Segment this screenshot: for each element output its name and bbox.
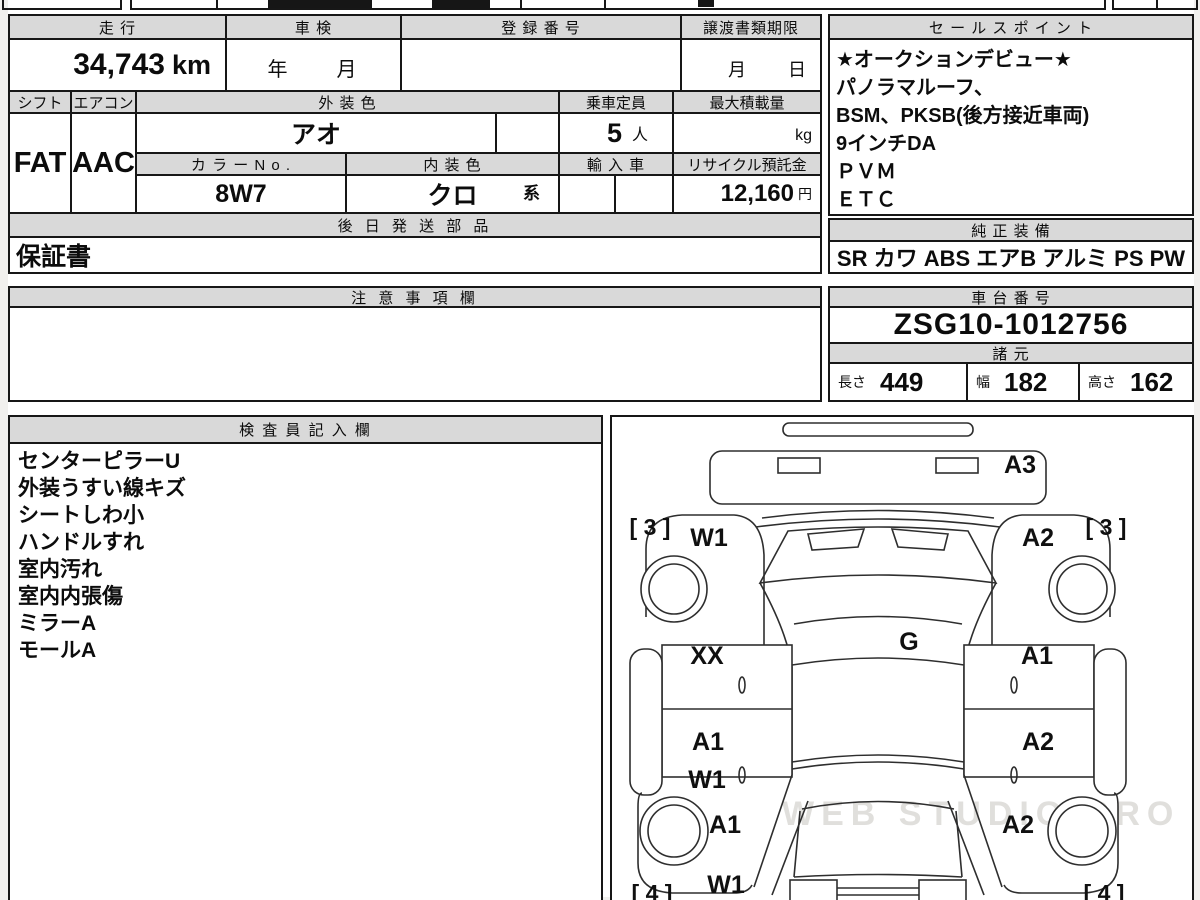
label-front-left-grade: [ 3 ]: [630, 514, 671, 541]
genuine-equipment-header: 純 正 装 備: [828, 218, 1194, 242]
left-side-molding: [630, 649, 662, 795]
sales-points-body: ★オークションデビュー★ パノラマルーフ、 BSM、PKSB(後方接近車両) 9…: [828, 38, 1194, 216]
mileage-header: 走 行: [8, 14, 227, 40]
label-front-left-fender: W1: [690, 524, 728, 553]
rear-window-curve: [802, 802, 954, 810]
capacity-header: 乗車定員: [558, 90, 674, 114]
cropped-cell: [1156, 0, 1198, 10]
label-rear-left-quarter-w: W1: [707, 871, 745, 900]
inspector-note: センターピラーU: [10, 448, 601, 475]
right-side-molding: [1094, 649, 1126, 795]
dash-curve: [794, 617, 962, 625]
recycle-number: 12,160: [721, 180, 794, 208]
inspection-header: 車 検: [225, 14, 402, 40]
sales-points-header: セ ー ル ス ポ イ ン ト: [828, 14, 1194, 40]
later-parts-header: 後 日 発 送 部 品: [8, 212, 822, 238]
interior-color-suffix: 系: [523, 179, 540, 204]
spec-length-label: 長さ: [838, 372, 866, 392]
cropped-text-fragment: [432, 0, 490, 9]
windshield: [760, 527, 996, 583]
notes-header: 注 意 事 項 欄: [8, 286, 822, 308]
rear-bumper-right: [919, 880, 966, 900]
trunk-right-edge: [956, 811, 962, 877]
cowl-line: [756, 519, 1000, 527]
bumper-vent-right: [936, 458, 978, 473]
chassis-number-value: ZSG10-1012756: [828, 306, 1194, 344]
capacity-value: 5 人: [558, 112, 674, 154]
genuine-equipment-value: SR カワ ABS エアB アルミ PS PW: [828, 240, 1194, 274]
inspector-notes-header: 検 査 員 記 入 欄: [10, 417, 601, 444]
sales-point-line: ＰＶＭ: [836, 158, 896, 186]
left-c-pillar: [754, 775, 792, 887]
cropped-text-fragment: [698, 0, 714, 7]
label-rear-right-quarter: A2: [1002, 811, 1034, 840]
recycle-unit: 円: [798, 184, 812, 212]
left-door-panel: [662, 645, 792, 777]
registration-value: [400, 38, 682, 92]
label-front-right-door: A1: [1021, 642, 1053, 671]
inspector-note: 室内内張傷: [10, 583, 601, 610]
label-front-panel: A3: [1004, 451, 1036, 480]
spec-height-cell: 高さ 162: [1078, 362, 1194, 402]
front-bumper: [710, 451, 1046, 504]
transfer-deadline-value: 月 日: [680, 38, 822, 92]
inspector-note: ミラーA: [10, 610, 601, 637]
trunk-left-edge: [794, 811, 800, 877]
chassis-number-header: 車 台 番 号: [828, 286, 1194, 308]
inspector-notes-list: センターピラーU 外装うすい線キズ シートしわ小 ハンドルすれ 室内汚れ 室内内…: [10, 444, 601, 664]
right-c-pillar: [964, 775, 1002, 887]
sales-point-line: ＥＴＣ: [836, 186, 896, 214]
spec-height-value: 162: [1130, 367, 1173, 398]
wiper-right: [892, 529, 948, 550]
label-front-right-fender: A2: [1022, 524, 1054, 553]
recycle-deposit-value: 12,160 円: [672, 174, 822, 214]
exterior-color-value: アオ: [135, 112, 497, 154]
cropped-cell: [604, 0, 1106, 10]
later-parts-value: 保証書: [8, 236, 822, 274]
rear-seat-curve: [792, 762, 964, 769]
spec-width-label: 幅: [976, 372, 990, 392]
spec-width-value: 182: [1004, 367, 1047, 398]
capacity-unit: 人: [632, 121, 648, 152]
inspector-notes-box: 検 査 員 記 入 欄 センターピラーU 外装うすい線キズ シートしわ小 ハンド…: [8, 415, 603, 900]
interior-color-name: クロ: [427, 176, 477, 212]
rear-bumper-left: [790, 880, 837, 900]
max-load-value: kg: [672, 112, 822, 154]
inspection-value: 年 月: [225, 38, 402, 92]
bumper-vent-left: [778, 458, 820, 473]
front-top-bar: [783, 423, 973, 436]
cropped-cell: [1112, 0, 1158, 10]
spec-height-label: 高さ: [1088, 372, 1116, 392]
sales-point-line: 9インチDA: [836, 130, 936, 158]
cropped-cell: [2, 0, 122, 10]
registration-header: 登 録 番 号: [400, 14, 682, 40]
inspector-note: シートしわ小: [10, 502, 601, 529]
inspector-note: ハンドルすれ: [10, 529, 601, 556]
inspector-note: 外装うすい線キズ: [10, 475, 601, 502]
inspector-note: 室内汚れ: [10, 556, 601, 583]
label-rear-right-door: A2: [1022, 728, 1054, 757]
front-seat-curve: [792, 658, 964, 665]
capacity-number: 5: [607, 118, 622, 149]
label-front-left-door: XX: [690, 642, 723, 671]
label-rear-right-grade: [ 4 ]: [1084, 880, 1125, 900]
front-left-wheel: [641, 556, 707, 622]
car-diagram-box: WEB STUDIO PRO: [610, 415, 1194, 900]
recycle-deposit-header: リサイクル預託金: [672, 152, 822, 176]
label-rear-left-quarter: A1: [709, 811, 741, 840]
trunk-bottom: [794, 875, 962, 878]
color-no-header: カ ラ ー N o .: [135, 152, 347, 176]
label-rear-left-door: A1: [692, 728, 724, 757]
label-rear-left-grade: [ 4 ]: [632, 880, 673, 900]
cropped-text-fragment: [268, 0, 372, 8]
cropped-cell: [130, 0, 218, 10]
label-roof: G: [899, 628, 918, 657]
label-front-right-grade: [ 3 ]: [1086, 514, 1127, 541]
max-load-header: 最大積載量: [672, 90, 822, 114]
aircon-header: エアコン: [70, 90, 137, 114]
spec-length-value: 449: [880, 367, 923, 398]
cropped-cell: [520, 0, 606, 10]
rear-seat-curve: [792, 755, 964, 762]
import-car-cell-2: [614, 174, 674, 214]
front-right-wheel: [1049, 556, 1115, 622]
auction-sheet-page: 走 行 車 検 登 録 番 号 譲渡書類期限 34,743 km 年 月 月 日…: [0, 0, 1200, 900]
sales-point-line: BSM、PKSB(後方接近車両): [836, 102, 1089, 130]
exterior-color-header: 外 装 色: [135, 90, 560, 114]
rear-left-wheel: [640, 797, 708, 865]
rear-right-wheel: [1048, 797, 1116, 865]
import-car-cell-1: [558, 174, 616, 214]
mileage-value: 34,743 km: [8, 38, 227, 92]
cowl-line: [762, 511, 994, 519]
mileage-unit: km: [172, 50, 211, 81]
wiper-left: [808, 529, 864, 550]
spec-length-cell: 長さ 449: [828, 362, 968, 402]
sales-point-line: ★オークションデビュー★: [836, 46, 1072, 74]
inspector-note: モールA: [10, 637, 601, 664]
shift-header: シフト: [8, 90, 72, 114]
import-car-header: 輸 入 車: [558, 152, 674, 176]
aircon-value: AAC: [70, 112, 137, 214]
color-no-value: 8W7: [135, 174, 347, 214]
label-rear-left-door-w: W1: [688, 766, 726, 795]
specs-header: 諸 元: [828, 342, 1194, 364]
transfer-deadline-header: 譲渡書類期限: [680, 14, 822, 40]
interior-color-header: 内 装 色: [345, 152, 560, 176]
interior-color-value: クロ 系: [345, 174, 560, 214]
exterior-color-extra-cell: [495, 112, 560, 154]
notes-body: [8, 306, 822, 402]
sales-point-line: パノラマルーフ、: [836, 74, 994, 102]
shift-value: FAT: [8, 112, 72, 214]
mileage-number: 34,743: [73, 48, 165, 82]
spec-width-cell: 幅 182: [966, 362, 1080, 402]
